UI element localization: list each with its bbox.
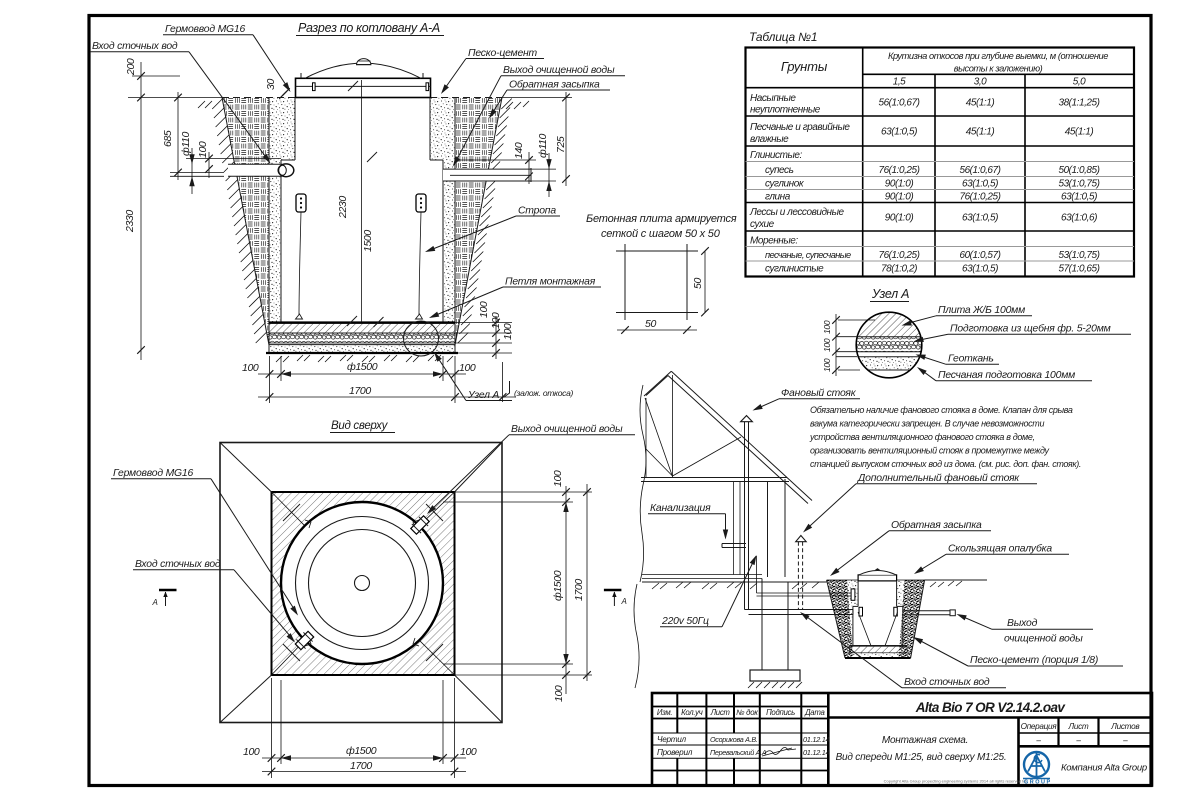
svg-text:53(1:0,75): 53(1:0,75) xyxy=(1058,250,1099,261)
svg-text:3,0: 3,0 xyxy=(974,77,987,88)
svg-text:–: – xyxy=(1035,736,1041,745)
svg-text:63(1:0,5): 63(1:0,5) xyxy=(962,179,998,190)
svg-text:90(1:0): 90(1:0) xyxy=(885,213,914,224)
svg-text:Вход сточных вод: Вход сточных вод xyxy=(92,41,178,52)
svg-text:Геоткань: Геоткань xyxy=(948,354,994,365)
svg-text:Перевальский А.А: Перевальский А.А xyxy=(710,748,767,757)
svg-text:–: – xyxy=(1075,736,1081,745)
svg-text:Чертил: Чертил xyxy=(657,735,686,744)
svg-text:1500: 1500 xyxy=(362,230,374,252)
svg-text:ф110: ф110 xyxy=(537,134,549,158)
svg-text:Лессы и лессовидные: Лессы и лессовидные xyxy=(749,207,845,218)
svg-text:Гермоввод MG16: Гермоввод MG16 xyxy=(165,24,245,35)
svg-text:GROUP: GROUP xyxy=(1024,780,1052,786)
svg-text:01.12.14: 01.12.14 xyxy=(803,748,830,757)
svg-text:Песко-цемент: Песко-цемент xyxy=(468,48,538,59)
svg-text:Разрез по котловану А-А: Разрез по котловану А-А xyxy=(298,21,440,35)
svg-text:Скользящая опалубка: Скользящая опалубка xyxy=(948,543,1052,555)
svg-text:Грунты: Грунты xyxy=(781,59,828,74)
svg-text:Подготовка из щебня фр. 5-20мм: Подготовка из щебня фр. 5-20мм xyxy=(950,323,1111,335)
svg-text:Бетонная плита армируется: Бетонная плита армируется xyxy=(586,213,737,225)
svg-text:100: 100 xyxy=(459,362,476,374)
svg-text:01.12.14: 01.12.14 xyxy=(803,735,830,744)
svg-text:Обратная засыпка: Обратная засыпка xyxy=(891,519,982,531)
svg-text:Канализация: Канализация xyxy=(650,503,711,514)
svg-text:78(1:0,2): 78(1:0,2) xyxy=(881,264,917,275)
svg-text:Плита Ж/Б 100мм: Плита Ж/Б 100мм xyxy=(938,305,1025,316)
svg-text:45(1:1): 45(1:1) xyxy=(966,98,995,109)
svg-text:Выход очищенной воды: Выход очищенной воды xyxy=(503,65,615,76)
svg-text:Песко-цемент (порция 1/8): Песко-цемент (порция 1/8) xyxy=(970,655,1098,666)
svg-text:Вход сточных вод: Вход сточных вод xyxy=(904,677,990,688)
svg-text:Выход: Выход xyxy=(1007,618,1038,629)
svg-text:50: 50 xyxy=(645,318,656,330)
svg-text:Лист: Лист xyxy=(710,708,731,717)
svg-text:2230: 2230 xyxy=(337,196,349,219)
svg-text:сухие: сухие xyxy=(750,219,775,230)
svg-text:А: А xyxy=(621,597,627,606)
svg-text:100: 100 xyxy=(243,746,260,758)
svg-text:63(1:0,6): 63(1:0,6) xyxy=(1061,213,1097,224)
svg-text:Насыпные: Насыпные xyxy=(750,93,796,104)
svg-text:60(1:0,57): 60(1:0,57) xyxy=(959,250,1000,261)
svg-text:Дополнительный фановый стояк: Дополнительный фановый стояк xyxy=(857,472,1020,484)
svg-text:Узел А: Узел А xyxy=(467,390,499,401)
svg-text:суглинок: суглинок xyxy=(765,179,805,190)
svg-text:38(1:1,25): 38(1:1,25) xyxy=(1058,98,1099,109)
svg-text:ф1500: ф1500 xyxy=(347,361,378,373)
svg-text:Петля монтажная: Петля монтажная xyxy=(505,277,596,288)
svg-text:Обязательно наличие фанового с: Обязательно наличие фанового стояка в до… xyxy=(810,405,1073,415)
svg-text:100: 100 xyxy=(552,470,564,487)
svg-text:Кол.уч: Кол.уч xyxy=(681,708,703,717)
svg-text:Проверил: Проверил xyxy=(657,748,693,757)
svg-text:Крутизна откосов при глубине в: Крутизна откосов при глубине выемки, м (… xyxy=(888,51,1108,61)
svg-text:63(1:0,5): 63(1:0,5) xyxy=(881,127,917,138)
svg-text:100: 100 xyxy=(490,312,502,329)
svg-text:Глинистые:: Глинистые: xyxy=(750,150,802,161)
svg-text:57(1:0,65): 57(1:0,65) xyxy=(1058,264,1099,275)
svg-text:1,5: 1,5 xyxy=(893,77,906,88)
svg-text:–: – xyxy=(1122,736,1128,745)
svg-text:50: 50 xyxy=(692,278,704,289)
svg-text:100: 100 xyxy=(478,301,490,318)
svg-text:100: 100 xyxy=(460,746,477,758)
svg-text:Вход сточных вод: Вход сточных вод xyxy=(135,559,221,570)
svg-text:100: 100 xyxy=(502,323,514,340)
svg-text:Листов: Листов xyxy=(1110,722,1140,731)
svg-text:140: 140 xyxy=(513,142,525,159)
svg-text:100: 100 xyxy=(197,141,209,158)
svg-text:организовать вентиляционный ст: организовать вентиляционный стояк в пром… xyxy=(810,446,1050,456)
svg-text:(залож. откоса): (залож. откоса) xyxy=(514,388,574,398)
svg-text:Дата: Дата xyxy=(804,708,825,717)
svg-text:Таблица №1: Таблица №1 xyxy=(749,30,817,44)
svg-text:Подпись: Подпись xyxy=(766,708,795,717)
svg-text:2330: 2330 xyxy=(124,210,136,233)
svg-text:Песчаная подготовка 100мм: Песчаная подготовка 100мм xyxy=(938,370,1075,381)
svg-text:63(1:0,5): 63(1:0,5) xyxy=(962,213,998,224)
svg-text:200: 200 xyxy=(125,58,137,76)
svg-text:76(1:0,25): 76(1:0,25) xyxy=(878,250,919,261)
svg-text:Узел А: Узел А xyxy=(871,287,909,301)
svg-text:56(1:0,67): 56(1:0,67) xyxy=(959,165,1000,176)
svg-text:Фановый стояк: Фановый стояк xyxy=(781,388,857,399)
svg-text:ф1500: ф1500 xyxy=(346,745,377,757)
svg-text:50(1:0,85): 50(1:0,85) xyxy=(1058,165,1099,176)
svg-text:вакума категорически запрещен.: вакума категорически запрещен. В случае … xyxy=(810,419,1044,429)
svg-text:супесь: супесь xyxy=(765,165,794,176)
svg-text:1700: 1700 xyxy=(350,760,372,772)
svg-text:ф1500: ф1500 xyxy=(552,570,564,601)
svg-text:Alta Bio 7 OR V2.14.2.oav: Alta Bio 7 OR V2.14.2.oav xyxy=(915,700,1067,715)
svg-text:устройства вентиляционного фан: устройства вентиляционного фанового стоя… xyxy=(809,432,1035,442)
svg-text:Вид спереди М1:25, вид сверху: Вид спереди М1:25, вид сверху М1:25. xyxy=(836,752,1007,763)
svg-text:1700: 1700 xyxy=(349,385,371,397)
svg-text:А: А xyxy=(152,598,158,607)
svg-text:Лист: Лист xyxy=(1068,722,1089,731)
svg-text:76(1:0,25): 76(1:0,25) xyxy=(959,192,1000,203)
svg-text:Изм.: Изм. xyxy=(657,708,673,717)
svg-text:Обратная засыпка: Обратная засыпка xyxy=(509,79,600,91)
svg-text:Компания Alta Group: Компания Alta Group xyxy=(1061,763,1147,774)
svg-text:100: 100 xyxy=(242,362,259,374)
svg-text:220v 50Гц: 220v 50Гц xyxy=(661,616,709,627)
svg-text:влажные: влажные xyxy=(750,134,789,145)
svg-text:685: 685 xyxy=(162,130,174,147)
svg-text:53(1:0,75): 53(1:0,75) xyxy=(1058,179,1099,190)
svg-text:очищенной воды: очищенной воды xyxy=(1004,634,1083,645)
svg-text:63(1:0,5): 63(1:0,5) xyxy=(1061,192,1097,203)
svg-text:Песчаные и гравийные: Песчаные и гравийные xyxy=(750,122,850,133)
svg-text:станцией выпуском сточных вод: станцией выпуском сточных вод из дома. (… xyxy=(810,459,1081,469)
svg-text:100: 100 xyxy=(822,358,832,372)
svg-text:Copyright Alta Group propectin: Copyright Alta Group propecting engineer… xyxy=(884,779,1027,784)
svg-text:ф110: ф110 xyxy=(180,132,192,156)
svg-text:Моренные:: Моренные: xyxy=(750,236,798,247)
svg-text:Операция: Операция xyxy=(1021,722,1058,731)
svg-text:30: 30 xyxy=(265,79,277,90)
svg-text:Гермоввод MG16: Гермоввод MG16 xyxy=(113,468,193,479)
svg-text:100: 100 xyxy=(822,338,832,352)
svg-text:Осорикова А.В.: Осорикова А.В. xyxy=(710,735,758,744)
svg-text:№ док: № док xyxy=(736,708,758,717)
svg-text:неуплотненные: неуплотненные xyxy=(750,105,821,116)
svg-text:45(1:1): 45(1:1) xyxy=(1065,127,1094,138)
svg-text:5,0: 5,0 xyxy=(1073,77,1086,88)
svg-text:100: 100 xyxy=(822,320,832,334)
svg-text:63(1:0,5): 63(1:0,5) xyxy=(962,264,998,275)
svg-text:90(1:0): 90(1:0) xyxy=(885,179,914,190)
svg-text:Монтажная схема.: Монтажная схема. xyxy=(882,735,968,746)
svg-text:глина: глина xyxy=(765,192,791,203)
svg-text:100: 100 xyxy=(553,685,565,702)
svg-text:45(1:1): 45(1:1) xyxy=(966,127,995,138)
svg-text:725: 725 xyxy=(555,136,567,153)
svg-text:56(1:0,67): 56(1:0,67) xyxy=(878,98,919,109)
svg-text:суглинистые: суглинистые xyxy=(765,264,824,275)
svg-text:90(1:0): 90(1:0) xyxy=(885,192,914,203)
svg-text:Выход очищенной воды: Выход очищенной воды xyxy=(511,424,623,435)
svg-text:песчаные, супесчаные: песчаные, супесчаные xyxy=(765,250,851,260)
svg-text:76(1:0,25): 76(1:0,25) xyxy=(878,165,919,176)
svg-text:сеткой с шагом 50 х 50: сеткой с шагом 50 х 50 xyxy=(601,228,721,240)
svg-text:высоты к заложению): высоты к заложению) xyxy=(954,64,1043,74)
svg-text:Стропа: Стропа xyxy=(518,206,556,217)
svg-text:1700: 1700 xyxy=(573,579,585,601)
svg-text:Вид сверху: Вид сверху xyxy=(331,420,389,432)
